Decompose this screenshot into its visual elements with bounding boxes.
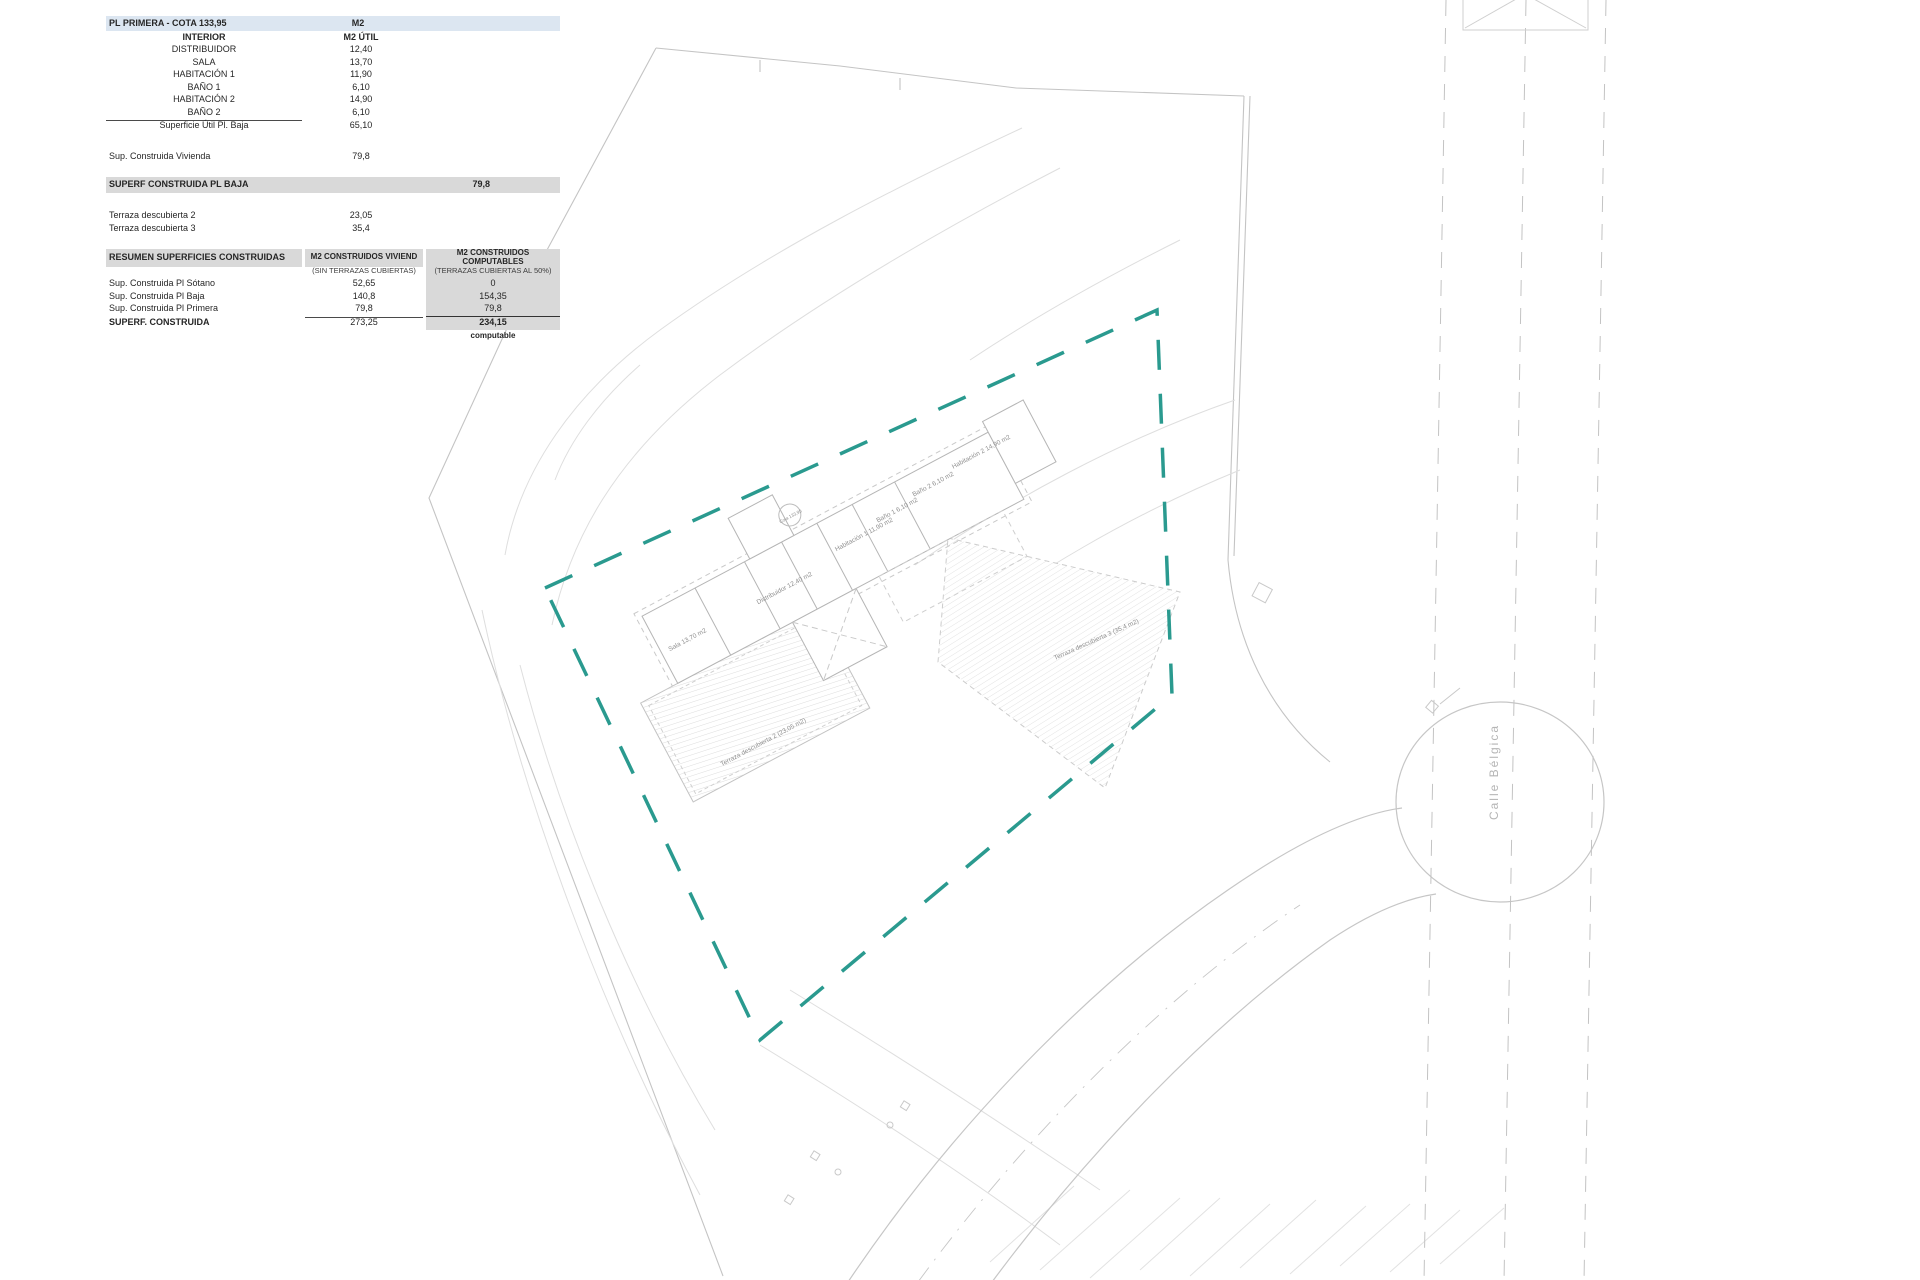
resumen-footnote-row: computable [106,330,560,343]
terraza-row: Terraza descubierta 2 23,05 [106,209,560,222]
pl-primera-table: PL PRIMERA - COTA 133,95 M2 INTERIOR M2 … [106,16,560,235]
right-of-way-dashed-lines [1424,0,1606,1280]
room-row: HABITACIÓN 2 14,90 [106,94,560,107]
construida-vivienda-row: Sup. Construida Vivienda 79,8 [106,150,560,163]
street-label: Calle Bélgica [1487,724,1501,820]
terraza-row: Terraza descubierta 3 35,4 [106,222,560,235]
room-row: BAÑO 1 6,10 [106,82,560,95]
resumen-table: RESUMEN SUPERFICIES CONSTRUIDAS M2 CONST… [106,249,560,343]
superf-construida-bar: SUPERF CONSTRUIDA PL BAJA 79,8 [106,177,560,193]
resumen-row: Sup. Construida Pl Baja 140,8 154,35 [106,291,560,304]
slope-hatch-marks [990,1186,1504,1278]
room-row: SALA 13,70 [106,57,560,70]
area-tables: PL PRIMERA - COTA 133,95 M2 INTERIOR M2 … [106,16,560,343]
site-boundary-lines [429,48,1330,1276]
resumen-row: Sup. Construida Pl Primera 79,8 79,8 [106,303,560,316]
resumen-header-row: RESUMEN SUPERFICIES CONSTRUIDAS M2 CONST… [106,249,560,265]
architectural-site-plan-sheet: Terraza descubierta 3 (35,4 m2) Cota 133… [0,0,1920,1280]
subtotal-row: Superficie Útil Pl. Baja 65,10 [106,119,560,132]
room-row: BAÑO 2 6,10 [106,107,560,120]
pl-primera-unit: M2 [302,19,414,29]
room-row: HABITACIÓN 1 11,90 [106,69,560,82]
pl-primera-title: PL PRIMERA - COTA 133,95 [106,19,302,29]
resumen-row: Sup. Construida Pl Sótano 52,65 0 [106,278,560,291]
terrace-3-hatch-area: Terraza descubierta 3 (35,4 m2) [938,538,1180,788]
interior-subheader-row: INTERIOR M2 ÚTIL [106,31,560,44]
resumen-total-row: SUPERF. CONSTRUIDA 273,25 234,15 [106,316,560,330]
room-row: DISTRIBUIDOR 12,40 [106,44,560,57]
resumen-subheader-row: (SIN TERRAZAS CUBIERTAS) (TERRAZAS CUBIE… [106,265,560,278]
pl-primera-header: PL PRIMERA - COTA 133,95 M2 [106,16,560,31]
